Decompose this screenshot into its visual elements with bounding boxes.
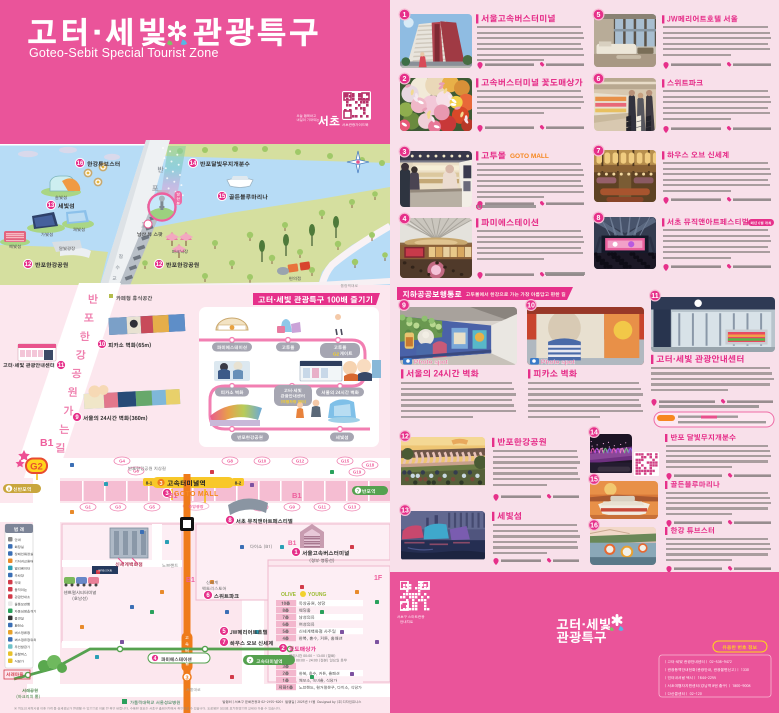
svg-text:3: 3 — [159, 481, 162, 487]
svg-text:4: 4 — [154, 656, 157, 662]
svg-text:13: 13 — [48, 203, 55, 209]
svg-text:3: 3 — [185, 676, 188, 682]
svg-text:G19: G19 — [353, 470, 362, 475]
svg-text:16: 16 — [77, 161, 84, 167]
svg-text:G5: G5 — [149, 505, 155, 510]
svg-text:12: 12 — [156, 262, 163, 268]
svg-text:G8: G8 — [227, 459, 233, 464]
svg-text:10: 10 — [99, 342, 106, 348]
svg-text:7: 7 — [357, 489, 360, 495]
svg-text:G11: G11 — [318, 505, 327, 510]
svg-text:G13: G13 — [348, 505, 357, 510]
svg-text:14: 14 — [190, 161, 197, 167]
svg-text:G15: G15 — [341, 459, 350, 464]
svg-text:G9: G9 — [289, 505, 295, 510]
svg-text:G18: G18 — [366, 463, 375, 468]
svg-text:7: 7 — [249, 658, 252, 664]
svg-text:12: 12 — [25, 262, 32, 268]
svg-text:9: 9 — [8, 487, 11, 493]
svg-text:15: 15 — [219, 194, 226, 200]
svg-text:G4: G4 — [119, 459, 125, 464]
svg-text:G12: G12 — [296, 459, 305, 464]
svg-text:G1: G1 — [85, 505, 91, 510]
svg-text:G6: G6 — [133, 469, 139, 474]
svg-text:11: 11 — [58, 363, 65, 369]
svg-text:G3: G3 — [115, 505, 121, 510]
svg-text:G2: G2 — [30, 461, 43, 472]
svg-text:G10: G10 — [258, 459, 267, 464]
